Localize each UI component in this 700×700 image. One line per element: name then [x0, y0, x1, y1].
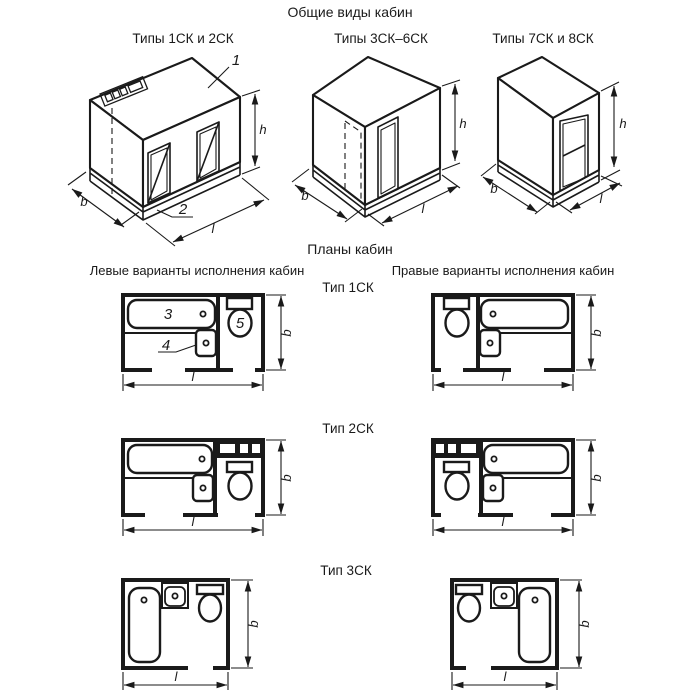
callout-5-label: 5 [236, 315, 245, 332]
toilet [444, 462, 469, 500]
dim-width-b: b [266, 295, 294, 370]
dim-width-b: b [231, 580, 261, 668]
bathtub [129, 588, 160, 662]
dim-l-label: l [175, 669, 179, 684]
drawing-canvas: Общие виды кабин Типы 1СК и 2СК Типы 3СК… [0, 0, 700, 700]
column-title-left-variants: Левые варианты исполнения кабин [90, 263, 305, 278]
dim-height: h [242, 90, 267, 174]
dim-h-label: h [459, 116, 466, 131]
dim-b-label: b [246, 620, 261, 627]
plan-2sk-left: b l [110, 433, 310, 545]
dim-b-label: b [577, 620, 592, 627]
iso-view-types-3sk-6sk: h b l [285, 48, 475, 238]
dim-l-label: l [212, 221, 216, 236]
dim-l-label: l [600, 191, 604, 206]
callout-4-label: 4 [162, 337, 170, 354]
callout-2-label: 2 [178, 201, 188, 218]
plan-3sk-left: b l [100, 575, 300, 700]
dim-height: h [442, 80, 467, 170]
washbasin [162, 583, 188, 608]
view-label-types-3sk-6sk: Типы 3СК–6СК [334, 31, 428, 46]
bathtub [480, 300, 571, 333]
dim-b-label: b [279, 474, 294, 481]
plan-1sk-right: b l [420, 288, 620, 400]
dim-h-label: h [619, 116, 626, 131]
toilet: 5 [227, 298, 252, 337]
dim-b-label: b [589, 474, 604, 481]
callout-1-label: 1 [232, 52, 240, 69]
bathtub [483, 445, 571, 478]
washbasin [480, 330, 500, 356]
dim-b-label: b [490, 181, 497, 196]
dim-width-b: b [560, 580, 592, 668]
view-label-types-1sk-2sk: Типы 1СК и 2СК [132, 31, 233, 46]
view-label-types-7sk-8sk: Типы 7СК и 8СК [492, 31, 593, 46]
callout-1-roof: 1 [208, 52, 240, 88]
dim-l-label: l [504, 669, 508, 684]
dim-length-l: l [452, 669, 557, 690]
dim-length-l: l [433, 514, 573, 536]
column-title-right-variants: Правые варианты исполнения кабин [392, 263, 615, 278]
washbasin [483, 475, 503, 501]
iso-view-types-7sk-8sk: h b l [480, 50, 665, 240]
washbasin [491, 583, 517, 608]
plan-2sk-right: b l [420, 433, 620, 545]
vent-block [213, 438, 265, 458]
dim-width-b: b [576, 295, 604, 370]
dim-width-b: b [576, 440, 604, 515]
dim-length-l: l [433, 369, 573, 391]
toilet [197, 585, 223, 622]
toilet [444, 298, 469, 337]
section-title-general-views: Общие виды кабин [287, 4, 412, 20]
iso-view-types-1sk-2sk: h b l 1 2 [60, 50, 270, 250]
dim-l-label: l [422, 201, 426, 216]
dim-width-b: b [266, 440, 294, 515]
dim-length-l: l [123, 514, 263, 536]
plan-1sk-left: 3 4 5 b l [110, 288, 310, 400]
bathtub: 3 [125, 300, 216, 333]
dim-b-label: b [279, 329, 294, 336]
callout-3-label: 3 [164, 306, 173, 323]
washbasin [193, 475, 213, 501]
bathtub [519, 588, 550, 662]
plan-label-type-2sk: Тип 2СК [322, 421, 373, 436]
plan-3sk-right: b l [430, 575, 630, 700]
plan-label-type-1sk: Тип 1СК [322, 280, 373, 295]
section-title-plans: Планы кабин [307, 241, 393, 257]
dim-b-label: b [301, 188, 308, 203]
toilet [456, 585, 482, 622]
vent-block [431, 438, 483, 458]
dim-length-l: l [123, 369, 263, 391]
dim-height: h [601, 82, 627, 180]
dim-b-label: b [589, 329, 604, 336]
dim-h-label: h [259, 122, 266, 137]
plan-label-type-3sk: Тип 3СК [320, 563, 371, 578]
dim-length-l: l [123, 669, 228, 690]
bathtub [125, 445, 213, 478]
toilet [227, 462, 252, 500]
dim-b-label: b [80, 194, 87, 209]
